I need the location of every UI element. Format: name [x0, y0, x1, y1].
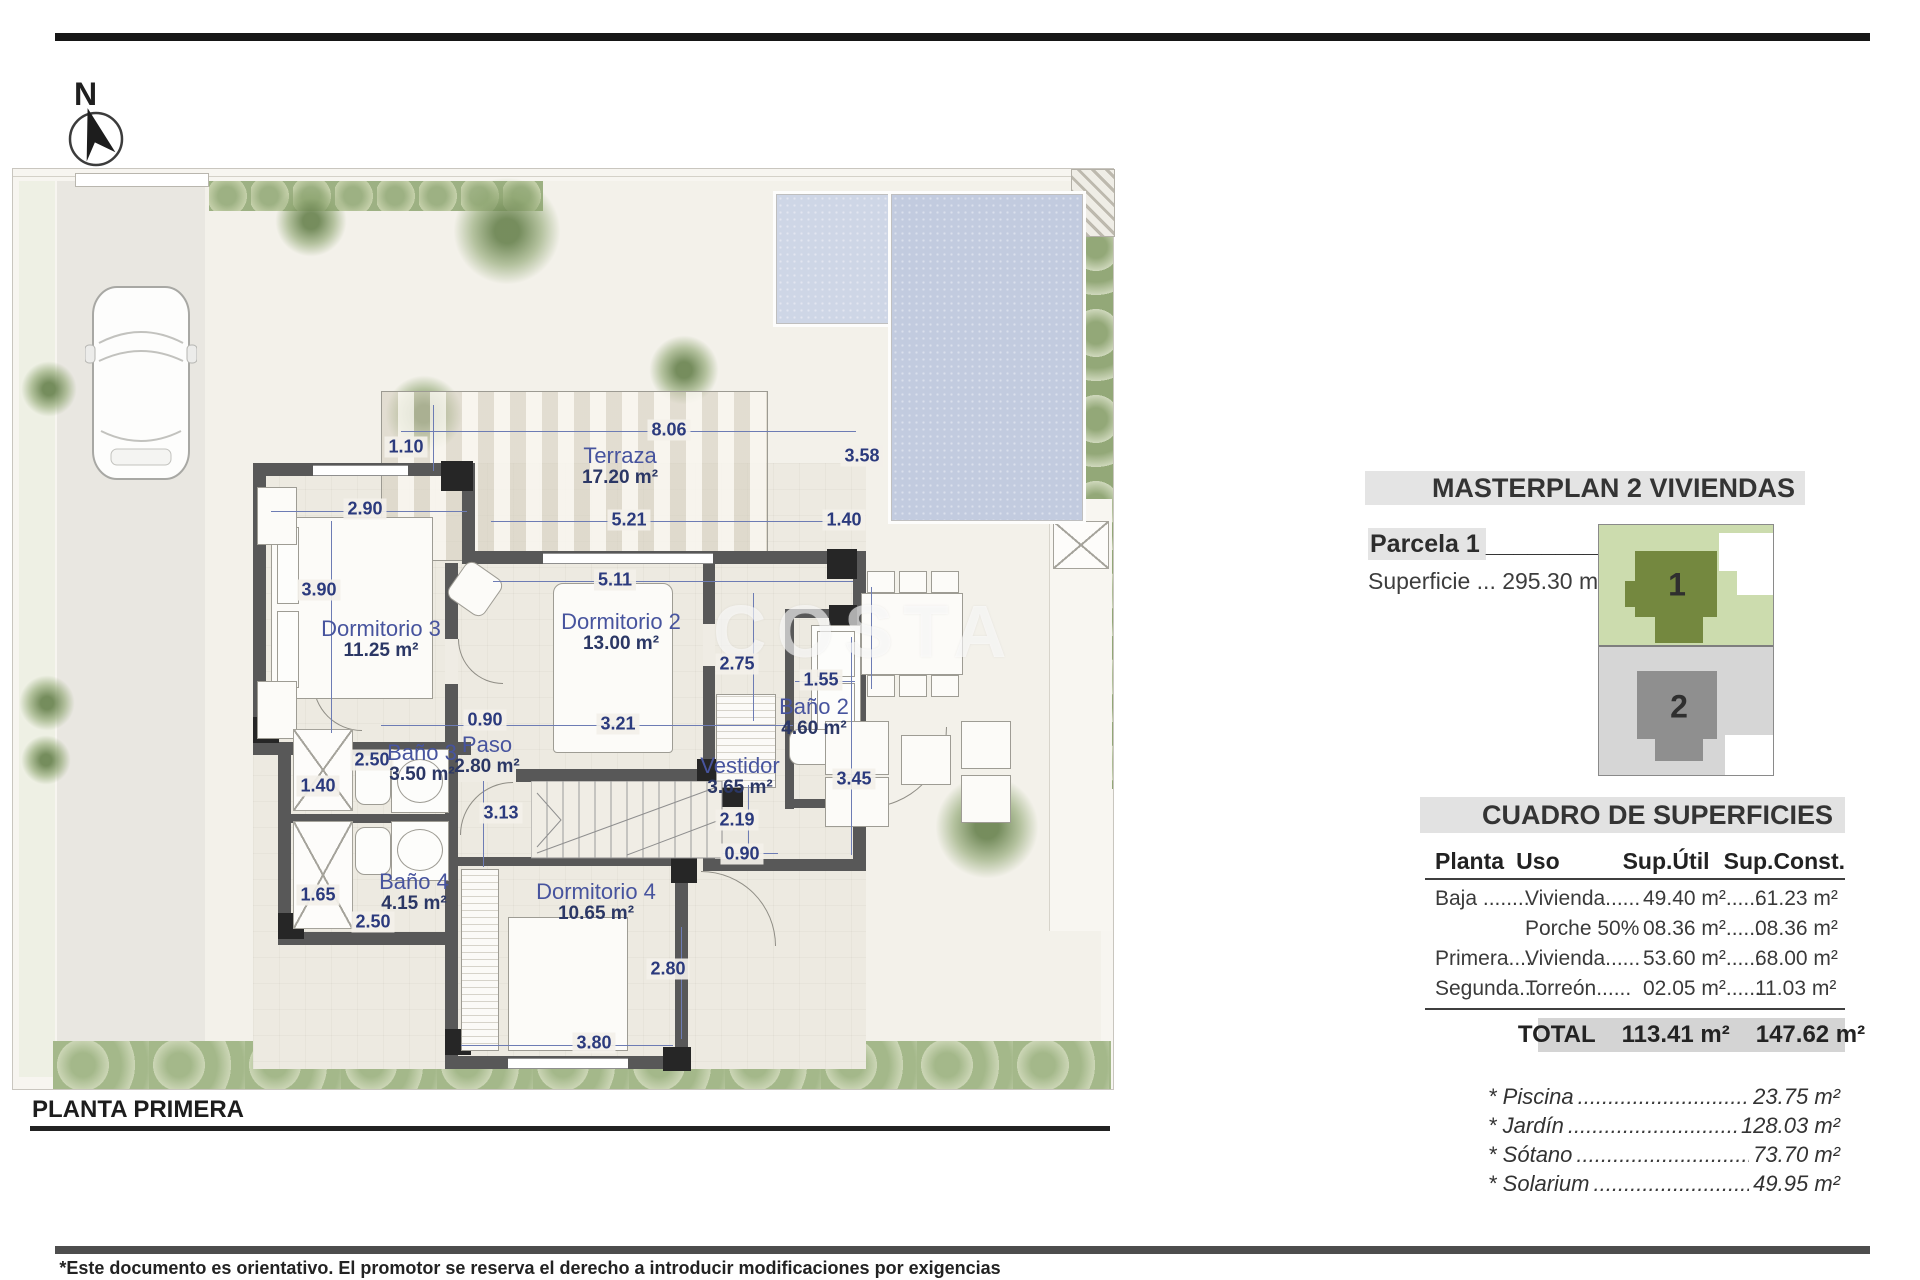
top-rule	[55, 33, 1870, 41]
closet-box	[293, 729, 353, 811]
bush	[19, 675, 75, 731]
masterplan-diagram: 1 2	[1598, 524, 1774, 776]
diagram-notch	[1725, 735, 1773, 775]
room-label-dormitorio3: Dormitorio 311.25 m²	[321, 617, 441, 661]
dim-0.90: 0.90	[463, 710, 506, 731]
table-cell: 02.05 m²......	[1643, 974, 1755, 1004]
parcela-superficie: Superficie ... 295.30 m²	[1368, 568, 1606, 595]
car	[85, 281, 197, 491]
table-body: Baja ........Vivienda......49.40 m².....…	[1425, 884, 1845, 1004]
unit-2-number: 2	[1670, 689, 1688, 726]
table-cell	[1425, 914, 1525, 944]
win	[508, 1058, 628, 1069]
nightstand	[257, 681, 297, 739]
room-label-terraza: Terraza17.20 m²	[582, 444, 658, 488]
dimh	[461, 1045, 673, 1046]
masterplan-header: MASTERPLAN 2 VIVIENDAS	[1365, 471, 1805, 505]
masterplan-title: MASTERPLAN 2 VIVIENDAS	[1432, 473, 1795, 504]
column-header: Planta	[1425, 846, 1516, 876]
disclaimer: *Este documento es orientativo. El promo…	[55, 1258, 1005, 1280]
pillow	[277, 611, 299, 688]
extra-item: * Solarium49.95 m²	[1488, 1169, 1840, 1198]
room-label-bano4: Baño 44.15 m²	[379, 870, 449, 914]
total-label: TOTAL	[1518, 1021, 1596, 1049]
dim-2.19: 2.19	[715, 810, 758, 831]
lounge-chair	[961, 775, 1011, 823]
extra-item: * Sótano73.70 m²	[1488, 1140, 1840, 1169]
dimh	[493, 581, 853, 582]
win	[445, 639, 458, 684]
extra-item: * Piscina23.75 m²	[1488, 1082, 1840, 1111]
dim-2.75: 2.75	[715, 654, 758, 675]
table-cell: Primera....	[1425, 944, 1525, 974]
blk	[441, 461, 473, 491]
total-row: TOTAL 113.41 m² 147.62 m²	[1538, 1018, 1845, 1052]
page: N	[0, 0, 1920, 1280]
nightstand	[257, 487, 297, 545]
chair	[931, 675, 959, 697]
wardrobe-dorm4	[461, 869, 499, 1051]
table-rule	[1425, 1008, 1845, 1010]
table-row: Segunda...Torreón......02.05 m²......11.…	[1425, 974, 1845, 1004]
dim-3.13: 3.13	[479, 803, 522, 824]
room-label-paso: Paso2.80 m²	[454, 733, 519, 777]
terraza-pergola	[381, 391, 768, 561]
dim-5.21: 5.21	[607, 510, 650, 531]
dim-2.50: 2.50	[351, 912, 394, 933]
superficies-table: PlantaUsoSup.ÚtilSup.Const.	[1425, 846, 1845, 876]
diagram-notch	[1737, 567, 1773, 595]
superficies-title: CUADRO DE SUPERFICIES	[1482, 800, 1833, 831]
dim-3.58: 3.58	[840, 446, 883, 467]
unit-1-shape	[1625, 581, 1639, 607]
table-row: Baja ........Vivienda......49.40 m².....…	[1425, 884, 1845, 914]
unit-1-shape	[1655, 609, 1703, 643]
dim-3.90: 3.90	[297, 580, 340, 601]
parcel-divider	[1599, 645, 1773, 647]
left-garden-strip	[19, 181, 55, 1077]
palm-tree	[453, 177, 561, 285]
lounge-chair	[961, 721, 1011, 769]
dimh	[381, 725, 793, 726]
table-cell: 11.03 m²	[1755, 974, 1845, 1004]
win	[543, 553, 713, 564]
bush	[21, 735, 71, 785]
table-cell: 61.23 m²	[1755, 884, 1845, 914]
unit-2-shape	[1655, 733, 1703, 761]
extras-list: * Piscina23.75 m²* Jardín128.03 m²* Sóta…	[1488, 1082, 1840, 1198]
table-cell: Vivienda......	[1525, 884, 1643, 914]
dimh	[491, 521, 859, 522]
dim-3.45: 3.45	[832, 769, 875, 790]
dim-3.80: 3.80	[572, 1033, 615, 1054]
dim-1.10: 1.10	[384, 437, 427, 458]
dim-1.55: 1.55	[799, 670, 842, 691]
table-cell: Segunda...	[1425, 974, 1525, 1004]
total-const: 147.62 m²	[1756, 1021, 1865, 1049]
superficies-header: CUADRO DE SUPERFICIES	[1420, 797, 1845, 833]
footer-rule	[55, 1246, 1870, 1254]
table-cell: 68.00 m²	[1755, 944, 1845, 974]
dim-8.06: 8.06	[647, 420, 690, 441]
table-cell: Baja ........	[1425, 884, 1525, 914]
dimh	[401, 431, 856, 432]
room-label-bano2: Baño 24.60 m²	[779, 695, 849, 739]
dimv	[483, 781, 484, 867]
dim-1.40: 1.40	[822, 510, 865, 531]
table-row: Primera....Vivienda......53.60 m²......6…	[1425, 944, 1845, 974]
dim-0.90: 0.90	[720, 844, 763, 865]
diagram-notch	[1719, 533, 1773, 571]
unit-1-number: 1	[1668, 567, 1686, 604]
parcela-label: Parcela 1_________	[1368, 530, 1611, 562]
bush	[21, 361, 77, 417]
plan-title-rule	[30, 1126, 1110, 1131]
pool-main	[891, 194, 1083, 521]
bed-dorm4	[508, 917, 628, 1051]
parcela-underscore: _________	[1486, 530, 1611, 558]
table-cell: 08.36 m²......	[1643, 914, 1755, 944]
dim-1.65: 1.65	[296, 885, 339, 906]
plan-title: PLANTA PRIMERA	[32, 1096, 244, 1124]
win	[313, 465, 408, 476]
dimv	[681, 927, 682, 1039]
column-header: Sup.Útil	[1623, 846, 1724, 876]
room-label-vestidor: Vestidor3.65 m²	[700, 754, 780, 798]
table-row: Porche 50%08.36 m²......08.36 m²	[1425, 914, 1845, 944]
room-label-dormitorio4: Dormitorio 410.65 m²	[536, 880, 656, 924]
total-util: 113.41 m²	[1622, 1021, 1730, 1049]
dim-5.11: 5.11	[594, 570, 636, 591]
dim-2.80: 2.80	[646, 959, 689, 980]
table-cell: 08.36 m²	[1755, 914, 1845, 944]
column-header: Uso	[1516, 846, 1622, 876]
dim-2.90: 2.90	[343, 499, 386, 520]
stairs	[531, 781, 723, 864]
dim-3.21: 3.21	[596, 714, 639, 735]
parcela-name: Parcela 1	[1368, 528, 1486, 560]
wall	[278, 932, 458, 945]
coffee-table	[901, 735, 951, 785]
table-cell: Porche 50%	[1525, 914, 1643, 944]
chair	[899, 675, 927, 697]
room-label-bano3: Baño 33.50 m²	[387, 741, 457, 785]
room-label-dormitorio2: Dormitorio 213.00 m²	[561, 610, 681, 654]
blk	[827, 549, 857, 579]
floor-plan: COSTA Terraza17.20 m²Dormitorio 311.25 m…	[12, 168, 1114, 1090]
toilet	[355, 827, 391, 875]
extra-item: * Jardín128.03 m²	[1488, 1111, 1840, 1140]
blk	[663, 1047, 691, 1071]
dim-1.40: 1.40	[296, 776, 339, 797]
skylight-box	[1053, 521, 1109, 569]
dimv	[433, 405, 434, 471]
pool-shallow	[776, 194, 902, 324]
tree	[275, 185, 347, 257]
table-cell: 53.60 m²......	[1643, 944, 1755, 974]
closet-box	[293, 821, 353, 929]
sink	[397, 829, 443, 871]
table-cell: Torreón......	[1525, 974, 1643, 1004]
table-cell: 49.40 m²......	[1643, 884, 1755, 914]
table-rule	[1425, 878, 1845, 880]
table-header-row: PlantaUsoSup.ÚtilSup.Const.	[1425, 846, 1845, 876]
table-cell: Vivienda......	[1525, 944, 1643, 974]
column-header: Sup.Const.	[1724, 846, 1845, 876]
gate	[75, 173, 209, 187]
north-arrow-icon	[64, 104, 128, 173]
